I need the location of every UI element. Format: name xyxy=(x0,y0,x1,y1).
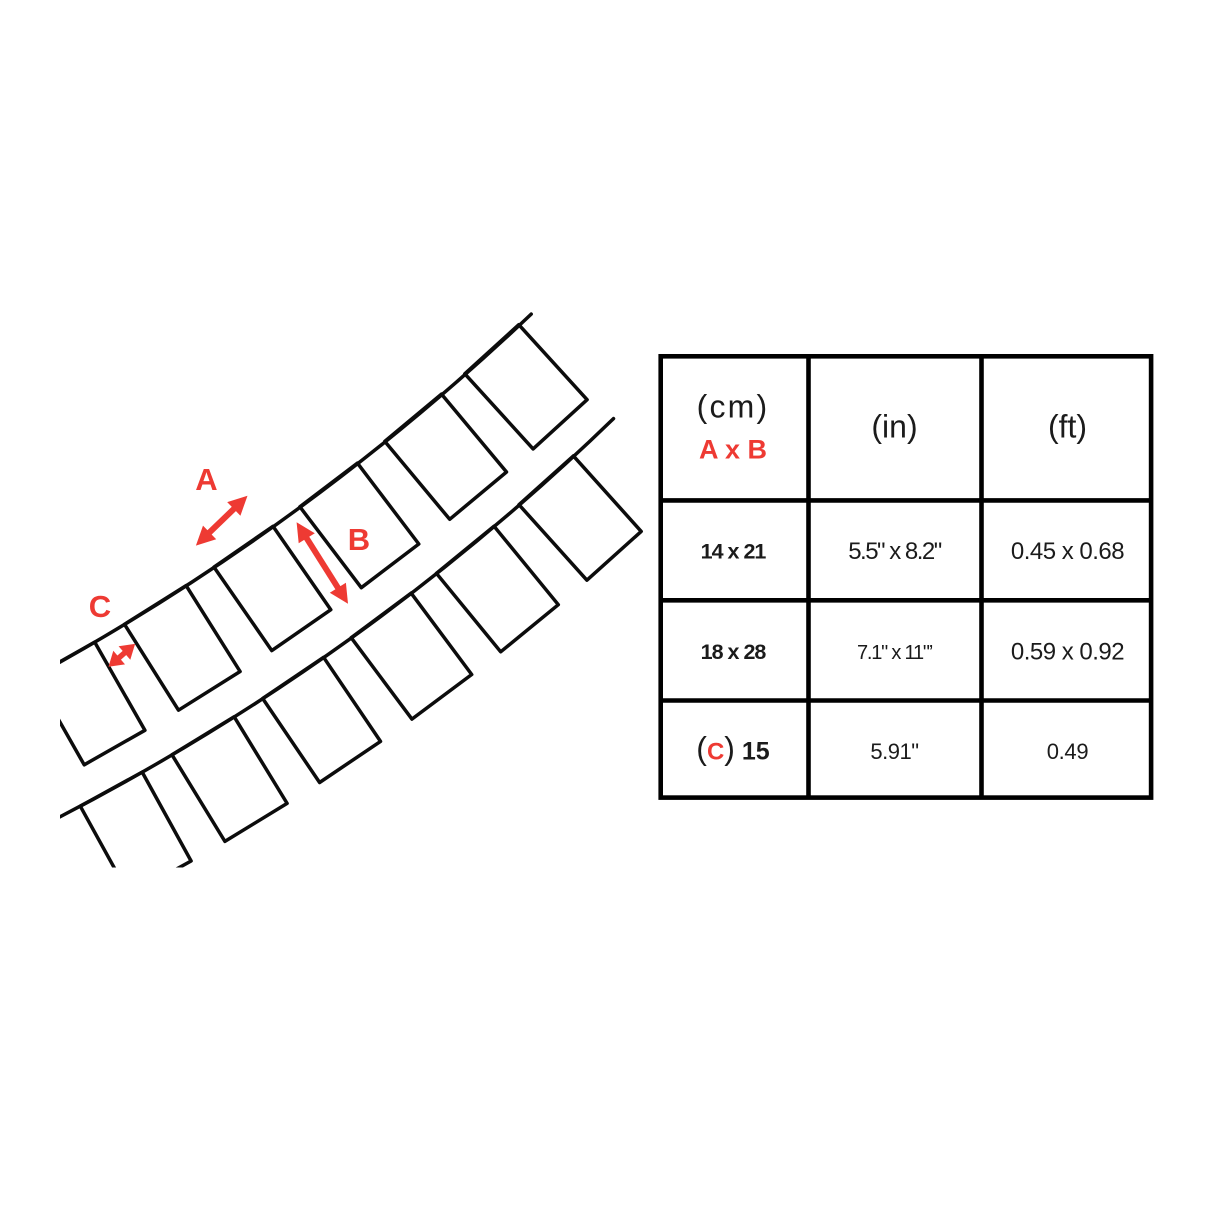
svg-text:0.59 x 0.92: 0.59 x 0.92 xyxy=(1011,638,1124,665)
svg-text:0.45 x 0.68: 0.45 x 0.68 xyxy=(1011,538,1124,565)
svg-text:14 x 21: 14 x 21 xyxy=(701,540,767,564)
svg-text:C: C xyxy=(89,589,111,624)
svg-text:B: B xyxy=(348,522,370,557)
svg-text:5.5" x 8.2": 5.5" x 8.2" xyxy=(848,538,942,565)
svg-text:7.1" x 11"’: 7.1" x 11"’ xyxy=(857,642,933,664)
svg-text:(in): (in) xyxy=(871,409,917,445)
svg-text:0.49: 0.49 xyxy=(1047,739,1089,764)
svg-text:(cm): (cm) xyxy=(697,389,770,425)
svg-text:(ft): (ft) xyxy=(1048,409,1087,445)
svg-text:A: A xyxy=(195,462,217,497)
svg-text:5.91": 5.91" xyxy=(870,739,918,764)
svg-text:18 x 28: 18 x 28 xyxy=(701,640,767,664)
svg-text:A x B: A x B xyxy=(699,435,767,465)
